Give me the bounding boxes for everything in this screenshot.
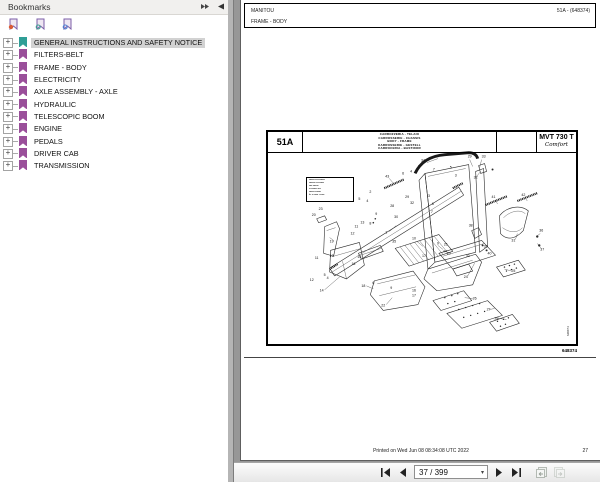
part-callout-number: 36: [539, 229, 543, 233]
part-callout-number: 29: [405, 195, 409, 199]
first-page-button[interactable]: [380, 467, 391, 478]
part-callout-number: 7: [433, 167, 435, 171]
part-callout-number: 21: [444, 242, 448, 246]
tree-connector: [13, 80, 18, 81]
bookmark-label[interactable]: ELECTRICITY: [31, 75, 84, 85]
bookmarks-panel: Bookmarks +GENERAL INSTRUCTIONS AND SAFE…: [0, 0, 228, 482]
last-page-button[interactable]: [511, 467, 522, 478]
part-callout-number: 20: [447, 251, 451, 255]
section-title: FRAME - BODY: [251, 19, 287, 25]
page-navigation-toolbar: 37 / 399 ▾: [234, 462, 600, 482]
tree-connector: [13, 166, 18, 167]
bookmark-label[interactable]: DRIVER CAB: [31, 149, 82, 159]
page-number-field[interactable]: 37 / 399 ▾: [414, 465, 488, 479]
part-callout-number: 15: [357, 255, 361, 259]
side-drawing-code: 648374: [566, 326, 570, 336]
bookmark-list: +GENERAL INSTRUCTIONS AND SAFETY NOTICE+…: [0, 37, 228, 172]
page-field-value[interactable]: 37 / 399: [415, 468, 481, 477]
part-callout-number: 5: [450, 165, 452, 169]
bookmarks-toolbar: [0, 15, 228, 35]
part-callout-number: 10: [412, 236, 416, 240]
tree-connector: [13, 116, 18, 117]
expand-plus-icon[interactable]: +: [3, 63, 13, 73]
part-callout-number: 6: [402, 171, 404, 175]
plate-title-lines: CARROZZERIA - TELAIOCARROSSERIE - CHASSI…: [303, 132, 497, 152]
note-line: ► ▪▪ ▪▪▪▪▪ ▪ ▪▪▪▪▪: [309, 194, 351, 197]
part-callout-number: 42: [521, 193, 525, 197]
part-callout-number: 37: [540, 247, 544, 251]
bookmark-ribbon-icon: [19, 157, 27, 175]
bookmark-item[interactable]: +DRIVER CAB: [0, 148, 228, 160]
new-bookmark-icon[interactable]: [35, 17, 46, 35]
brand-text: MANITOU: [251, 8, 274, 14]
part-callout-number: 7: [431, 210, 433, 214]
expand-plus-icon[interactable]: +: [3, 149, 13, 159]
tree-connector: [13, 92, 18, 93]
part-callout-number: 8: [369, 222, 371, 226]
part-callout-number: 13: [360, 221, 364, 225]
part-callout-number: 22: [381, 304, 385, 308]
part-callout-number: 32: [410, 201, 414, 205]
tree-connector: [13, 104, 18, 105]
bookmark-label[interactable]: HYDRAULIC: [31, 100, 79, 110]
part-callout-number: 3: [455, 173, 457, 177]
part-callout-number: 31: [511, 238, 515, 242]
part-callout-number: 16: [412, 289, 416, 293]
part-callout-number: 11: [315, 256, 319, 260]
bookmark-item[interactable]: +TRANSMISSION: [0, 160, 228, 172]
bookmark-label[interactable]: PEDALS: [31, 137, 66, 147]
parts-diagram-plate: 3429333253743642254292832309836712320191…: [266, 130, 578, 346]
part-callout-number: 9: [390, 286, 392, 290]
tree-connector: [13, 43, 18, 44]
bookmark-label[interactable]: TRANSMISSION: [31, 161, 93, 171]
document-viewport[interactable]: MANITOU 51A - (648374) FRAME - BODY: [234, 0, 600, 462]
part-callout-number: 12: [350, 232, 354, 236]
part-callout-number: 18: [361, 284, 365, 288]
expand-plus-icon[interactable]: +: [3, 137, 13, 147]
part-callout-number: 14: [320, 289, 324, 293]
part-callout-number: 34: [421, 159, 425, 163]
tree-connector: [13, 141, 18, 142]
bookmark-label[interactable]: FILTERS-BELT: [31, 50, 87, 60]
next-view-button[interactable]: [553, 466, 566, 479]
model-name: MVT 730 T: [537, 134, 576, 142]
expand-plus-icon[interactable]: +: [3, 38, 13, 48]
next-page-button[interactable]: [495, 467, 504, 478]
part-callout-number: 6: [432, 202, 434, 206]
part-callout-number: 28: [390, 204, 394, 208]
part-callout-number: 6: [372, 281, 374, 285]
tree-connector: [13, 153, 18, 154]
part-callout-number: 17: [412, 294, 416, 298]
part-callout-number: 13: [330, 254, 334, 258]
part-callout-number: 4: [327, 276, 329, 280]
pdf-page: MANITOU 51A - (648374) FRAME - BODY: [240, 0, 600, 461]
part-callout-number: 40: [488, 251, 492, 255]
part-callout-number: 5: [324, 273, 326, 277]
part-callout-number: 19: [330, 239, 334, 243]
part-callout-number: 20: [312, 213, 316, 217]
bookmark-item[interactable]: +HYDRAULIC: [0, 98, 228, 110]
bookmark-item[interactable]: +GENERAL INSTRUCTIONS AND SAFETY NOTICE: [0, 37, 228, 49]
part-callout-number: 23: [319, 207, 323, 211]
expand-plus-icon[interactable]: +: [3, 161, 13, 171]
bookmark-label[interactable]: GENERAL INSTRUCTIONS AND SAFETY NOTICE: [31, 38, 205, 48]
tree-connector: [13, 129, 18, 130]
part-callout-number: 28: [495, 316, 499, 320]
part-callout-number: 35: [392, 239, 396, 243]
model-variant: Comfort: [537, 142, 576, 148]
bookmark-options-icon[interactable]: [8, 17, 19, 35]
part-callout-number: 5: [358, 197, 360, 201]
panel-forward-icon[interactable]: [201, 2, 210, 11]
page-reference: 51A - (648374): [557, 8, 590, 14]
delete-bookmark-icon[interactable]: [62, 17, 73, 35]
exploded-parts-diagram: 3429333253743642254292832309836712320191…: [268, 132, 576, 344]
part-callout-number: 11: [355, 225, 359, 229]
plate-title-gap: [497, 132, 536, 152]
bookmark-item[interactable]: +FILTERS-BELT: [0, 49, 228, 61]
page-header-box: MANITOU 51A - (648374) FRAME - BODY: [244, 3, 596, 28]
part-callout-number: 27: [487, 307, 491, 311]
part-callout-number: 2: [418, 165, 420, 169]
panel-collapse-icon[interactable]: [216, 2, 225, 11]
tree-connector: [13, 67, 18, 68]
page-number: 27: [582, 448, 588, 454]
bookmark-label[interactable]: ENGINE: [31, 124, 65, 134]
tree-connector: [13, 55, 18, 56]
bookmark-item[interactable]: +ENGINE: [0, 123, 228, 135]
plate-code: 51A: [268, 132, 303, 152]
part-callout-number: 29: [468, 155, 472, 159]
bookmark-item[interactable]: +AXLE ASSEMBLY - AXLE: [0, 86, 228, 98]
part-callout-number: 38: [469, 224, 473, 228]
part-callout-number: 32: [466, 254, 470, 258]
expand-plus-icon[interactable]: +: [3, 50, 13, 60]
model-box: MVT 730 T Comfort: [536, 132, 576, 152]
expand-plus-icon[interactable]: +: [3, 75, 13, 85]
bookmark-label[interactable]: TELESCOPIC BOOM: [31, 112, 108, 122]
bookmark-item[interactable]: +TELESCOPIC BOOM: [0, 111, 228, 123]
bookmark-label[interactable]: AXLE ASSEMBLY - AXLE: [31, 87, 121, 97]
part-callout-number: 1: [385, 231, 387, 235]
part-callout-number: 4: [366, 199, 368, 203]
part-callout-number: 43: [385, 174, 389, 178]
part-callout-number: 16: [351, 262, 355, 266]
part-callout-number: 2: [369, 190, 371, 194]
expand-plus-icon[interactable]: +: [3, 124, 13, 134]
bookmark-item[interactable]: +ELECTRICITY: [0, 74, 228, 86]
part-callout-number: 39: [484, 244, 488, 248]
bookmark-item[interactable]: +PEDALS: [0, 135, 228, 147]
expand-plus-icon[interactable]: +: [3, 112, 13, 122]
part-callout-number: 12: [310, 278, 314, 282]
previous-page-button[interactable]: [398, 467, 407, 478]
expand-plus-icon[interactable]: +: [3, 100, 13, 110]
part-callout-number: 30: [394, 215, 398, 219]
part-callout-number: 9: [437, 241, 439, 245]
part-callout-number: 41: [492, 195, 496, 199]
part-callout-number: 24: [464, 275, 468, 279]
bookmarks-panel-title: Bookmarks: [8, 2, 51, 12]
bookmarks-panel-header: Bookmarks: [0, 0, 228, 15]
part-callout-number: 9: [375, 212, 377, 216]
part-callout-number: 33: [482, 155, 486, 159]
previous-view-button[interactable]: [535, 466, 548, 479]
part-callout-number: 4: [410, 169, 412, 173]
plate-title-line: CARROCERIA - BASTIDOR: [378, 147, 421, 150]
part-callout-number: 17: [422, 254, 426, 258]
plate-title-row: 51A CARROZZERIA - TELAIOCARROSSERIE - CH…: [268, 132, 576, 153]
printed-timestamp: Printed on Wed Jun 08 08:34:08 UTC 2022: [241, 448, 600, 454]
part-callout-number: 32: [474, 175, 478, 179]
footer-rule: [244, 357, 596, 358]
part-callout-number: 25: [511, 269, 515, 273]
serial-note-box: ▪▪▪▪▪▪▪ ▪▪▪ ▪▪▪▪▪▪▪▪▪▪▪▪▪▪▪▪ ▪▪ ▪▪▪▪▪▪▪▪…: [306, 177, 354, 202]
pdf-viewer-window: Bookmarks +GENERAL INSTRUCTIONS AND SAFE…: [0, 0, 600, 482]
part-callout-number: 26: [473, 297, 477, 301]
part-callout-number: 3: [428, 194, 430, 198]
drawing-number: 648374: [511, 348, 577, 353]
expand-plus-icon[interactable]: +: [3, 87, 13, 97]
bookmark-label[interactable]: FRAME - BODY: [31, 63, 90, 73]
bookmark-item[interactable]: +FRAME - BODY: [0, 62, 228, 74]
page-field-dropdown-icon[interactable]: ▾: [481, 469, 487, 476]
